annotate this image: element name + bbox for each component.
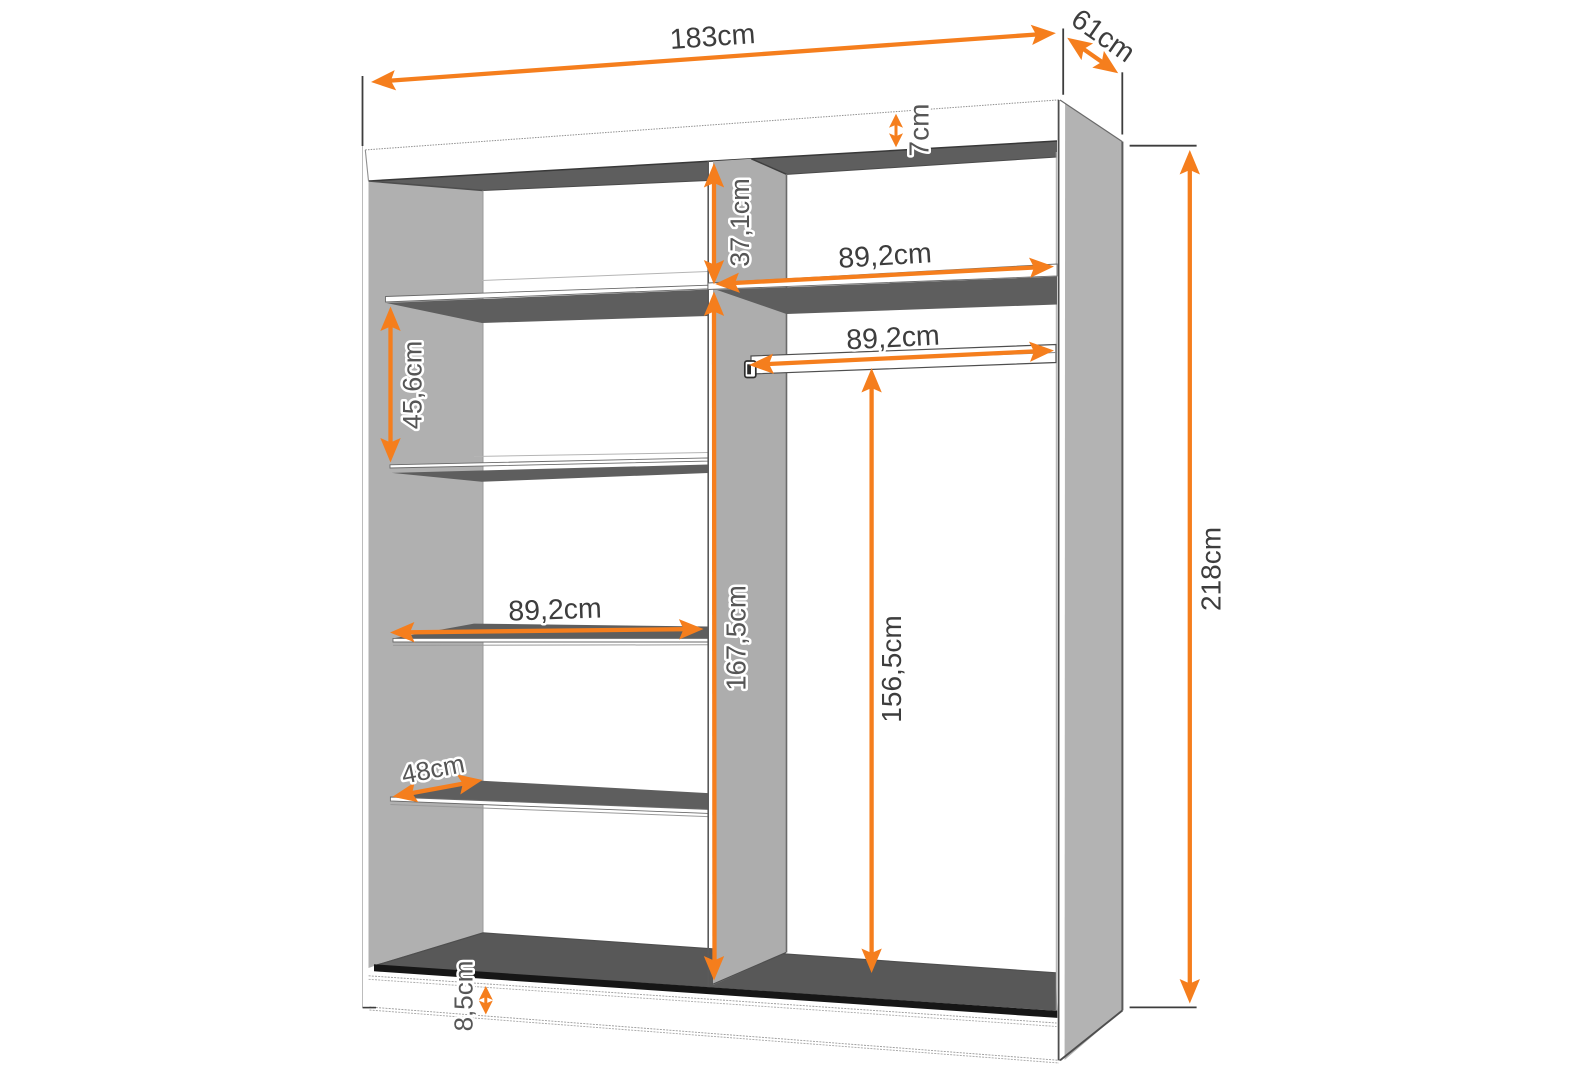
svg-text:89,2cm: 89,2cm [508, 592, 603, 627]
svg-text:167,5cm: 167,5cm [721, 585, 752, 690]
svg-text:89,2cm: 89,2cm [837, 237, 932, 275]
svg-text:183cm: 183cm [669, 18, 757, 56]
svg-text:218cm: 218cm [1196, 527, 1227, 611]
svg-text:89,2cm: 89,2cm [845, 320, 940, 357]
svg-text:37,1cm: 37,1cm [725, 178, 755, 267]
svg-text:45,6cm: 45,6cm [398, 341, 428, 430]
svg-text:156,5cm: 156,5cm [876, 615, 907, 722]
svg-text:7cm: 7cm [904, 104, 935, 157]
svg-text:8,5cm: 8,5cm [449, 961, 479, 1032]
